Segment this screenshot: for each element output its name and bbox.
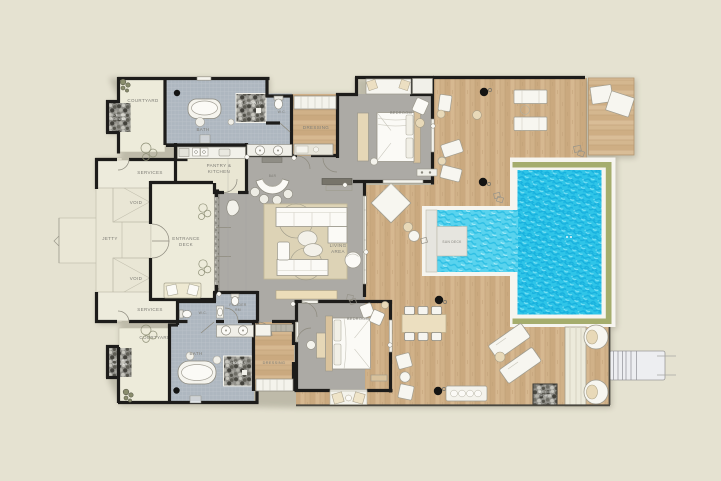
svg-text:DRESSING: DRESSING bbox=[263, 361, 286, 365]
svg-text:W.C.: W.C. bbox=[199, 311, 208, 315]
svg-text:LIVING: LIVING bbox=[330, 243, 347, 248]
svg-text:SHOWER: SHOWER bbox=[538, 394, 551, 398]
svg-text:BEDROOM: BEDROOM bbox=[347, 317, 369, 321]
svg-text:BATH: BATH bbox=[189, 351, 202, 356]
svg-text:KITCHEN: KITCHEN bbox=[208, 169, 230, 174]
svg-text:SHOWER: SHOWER bbox=[112, 362, 128, 366]
svg-text:W.C.: W.C. bbox=[278, 110, 287, 114]
svg-text:JETTY: JETTY bbox=[102, 236, 118, 241]
svg-text:H/C SHOWER: H/C SHOWER bbox=[236, 101, 262, 105]
svg-text:ENTRANCE: ENTRANCE bbox=[172, 236, 200, 241]
svg-text:SHOWER: SHOWER bbox=[111, 117, 127, 121]
svg-text:AREA: AREA bbox=[331, 249, 345, 254]
svg-text:BEDROOM: BEDROOM bbox=[390, 111, 412, 115]
svg-text:SHOWER: SHOWER bbox=[229, 361, 247, 365]
svg-text:COURTYARD: COURTYARD bbox=[139, 335, 171, 340]
svg-text:VOID: VOID bbox=[130, 276, 143, 281]
svg-text:DRESSING: DRESSING bbox=[303, 125, 329, 130]
svg-text:SERVICES: SERVICES bbox=[137, 170, 162, 175]
svg-text:VOID: VOID bbox=[130, 200, 143, 205]
svg-text:SUN DECK: SUN DECK bbox=[442, 240, 462, 244]
svg-text:SERVICES: SERVICES bbox=[137, 307, 162, 312]
svg-text:BATH: BATH bbox=[196, 127, 209, 132]
svg-text:COURTYARD: COURTYARD bbox=[127, 98, 159, 103]
svg-text:PANTRY &: PANTRY & bbox=[207, 163, 232, 168]
svg-text:O/DOOR: O/DOOR bbox=[539, 390, 551, 394]
svg-text:DECK: DECK bbox=[179, 242, 193, 247]
svg-text:BAR: BAR bbox=[269, 174, 277, 178]
svg-text:RM: RM bbox=[235, 308, 241, 312]
